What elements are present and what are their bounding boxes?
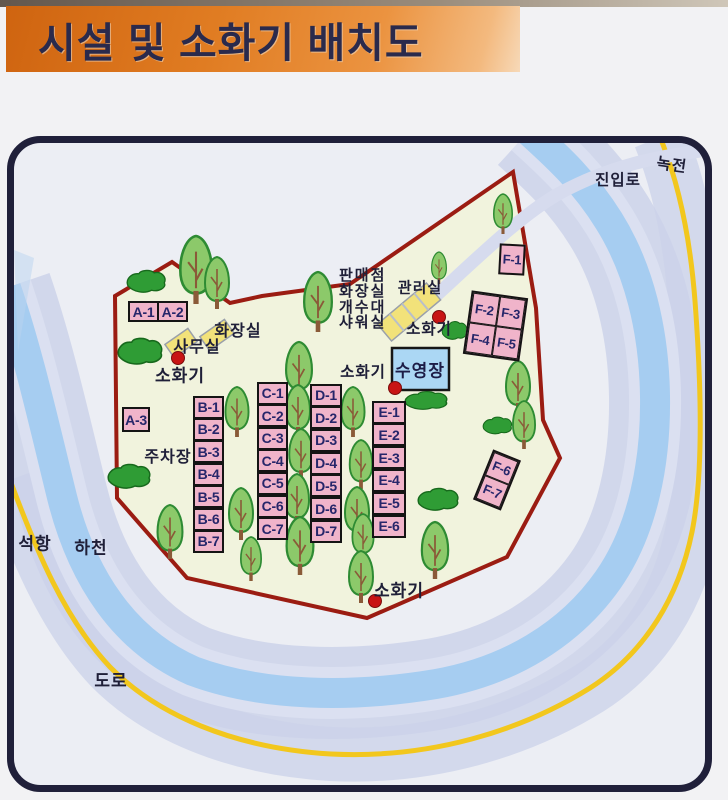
site-box-f5: F-5 <box>491 326 521 359</box>
label-store: 판매점 <box>339 268 386 284</box>
fire-extinguisher-label-4: 소화기 <box>374 577 424 602</box>
label-shower: 샤워실 <box>339 315 386 331</box>
label-entry-road: 진입로 <box>595 168 641 190</box>
label-office: 사무실 <box>173 333 220 357</box>
site-box-f1: F-1 <box>498 243 526 275</box>
site-box-d5: D-5 <box>310 474 342 497</box>
label-toilet: 화장실 <box>214 317 261 341</box>
label-toilet-2: 화장실 <box>339 284 386 300</box>
site-box-b6: B-6 <box>193 508 224 531</box>
site-box-d1: D-1 <box>310 384 342 407</box>
site-box-c5: C-5 <box>257 472 288 495</box>
label-service-building: 판매점 화장실 개수대 샤워실 <box>339 268 386 331</box>
label-nokjeon: 녹전 <box>655 151 688 177</box>
site-box-b3: B-3 <box>193 440 224 463</box>
site-box-e3: E-3 <box>372 446 406 469</box>
site-box-e4: E-4 <box>372 469 406 492</box>
site-box-a2: A-2 <box>157 301 188 322</box>
label-stream: 하천 <box>74 534 107 559</box>
site-box-b7: B-7 <box>193 530 224 553</box>
fire-extinguisher-label-2: 소화기 <box>406 317 452 339</box>
label-admin-office: 관리실 <box>398 277 442 298</box>
site-box-c1: C-1 <box>257 382 288 405</box>
site-box-b1: B-1 <box>193 396 224 419</box>
site-box-a1: A-1 <box>128 301 159 322</box>
label-pool: 수영장 <box>395 357 445 382</box>
site-box-b4: B-4 <box>193 463 224 486</box>
site-box-c4: C-4 <box>257 449 288 472</box>
site-box-c3: C-3 <box>257 427 288 450</box>
site-box-c6: C-6 <box>257 495 288 518</box>
label-parking: 주차장 <box>144 443 191 467</box>
site-box-d6: D-6 <box>310 497 342 520</box>
site-box-e2: E-2 <box>372 423 406 446</box>
site-box-b2: B-2 <box>193 418 224 441</box>
site-box-c2: C-2 <box>257 404 288 427</box>
site-box-f3: F-3 <box>496 296 526 329</box>
site-stack-f6-f7: F-6 F-7 <box>473 449 521 510</box>
site-box-d7: D-7 <box>310 520 342 543</box>
site-box-b5: B-5 <box>193 485 224 508</box>
site-grid-f2-f5: F-2 F-3 F-4 F-5 <box>463 290 528 361</box>
site-box-e6: E-6 <box>372 515 406 538</box>
fire-extinguisher-label-1: 소화기 <box>155 362 205 387</box>
fire-extinguisher-label-3: 소화기 <box>340 360 386 382</box>
label-road: 도로 <box>94 667 127 692</box>
signboard: 시설 및 소화기 배치도 <box>0 0 728 800</box>
label-sink: 개수대 <box>339 300 386 316</box>
site-box-d4: D-4 <box>310 452 342 475</box>
map-overlay: A-1 A-2 A-3 F-1 F-2 F-3 F-4 F-5 F-6 F-7 … <box>0 0 728 800</box>
site-box-d3: D-3 <box>310 429 342 452</box>
site-box-d2: D-2 <box>310 406 342 429</box>
site-box-e5: E-5 <box>372 492 406 515</box>
site-box-a3: A-3 <box>122 407 150 432</box>
site-box-c7: C-7 <box>257 517 288 540</box>
label-seokhang: 석항 <box>18 530 51 555</box>
site-box-e1: E-1 <box>372 401 406 424</box>
